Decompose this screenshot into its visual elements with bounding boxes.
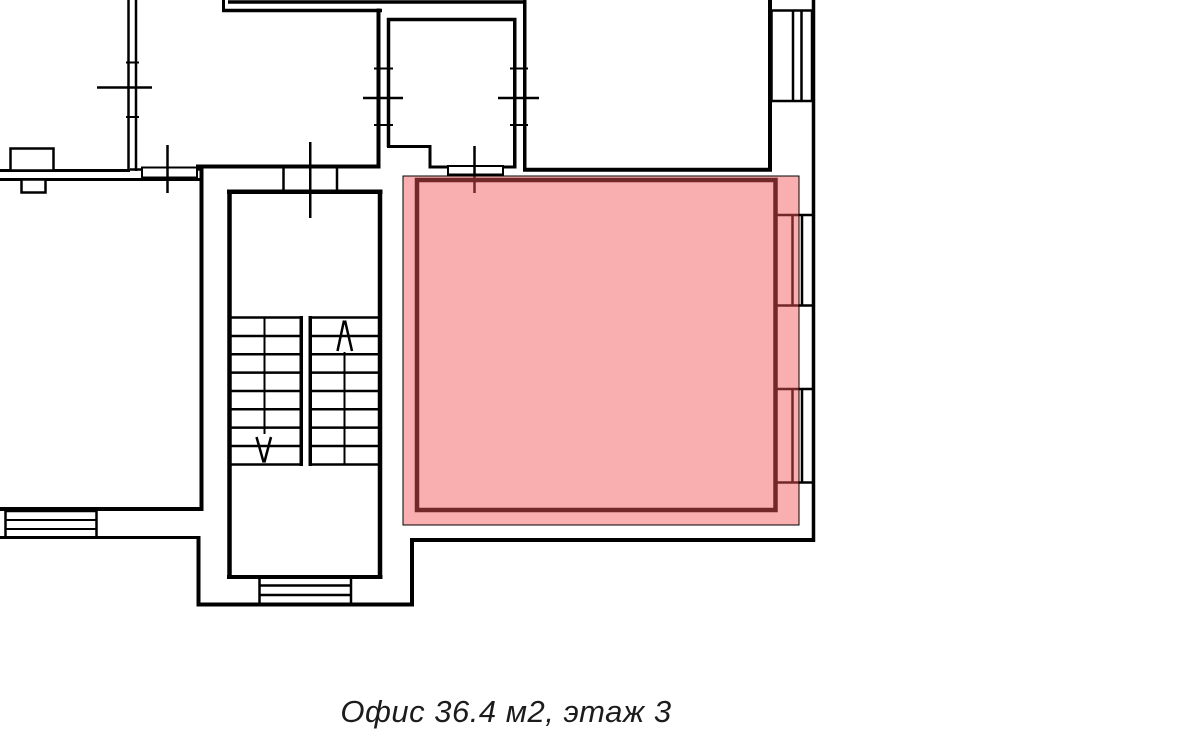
window-icon-top-left-wall [97,63,152,118]
wall-niche [22,180,46,193]
window-icon-right-column-top [772,11,813,102]
entrance-steps [260,578,352,604]
floor-plan-figure: Офис 36.4 м2, этаж 3 [0,0,1200,745]
balcony-niche [11,149,54,171]
stair-flight-down [229,316,301,466]
plan-caption: Офис 36.4 м2, этаж 3 [0,694,1012,730]
window-icon-hall-left [363,69,403,126]
window-icon-hall-right [498,69,539,126]
door-icon-left-room [142,145,197,193]
staircase [227,142,383,604]
left-room-walls [0,0,204,538]
stair-flight-up [310,316,379,466]
down-arrow-icon [257,437,272,463]
office-highlight[interactable] [403,176,799,525]
floor-plan [0,0,1200,660]
top-rooms-walls [196,0,772,172]
window-icon-left-room-bottom [6,511,97,538]
door-icon-staircase [284,142,338,218]
